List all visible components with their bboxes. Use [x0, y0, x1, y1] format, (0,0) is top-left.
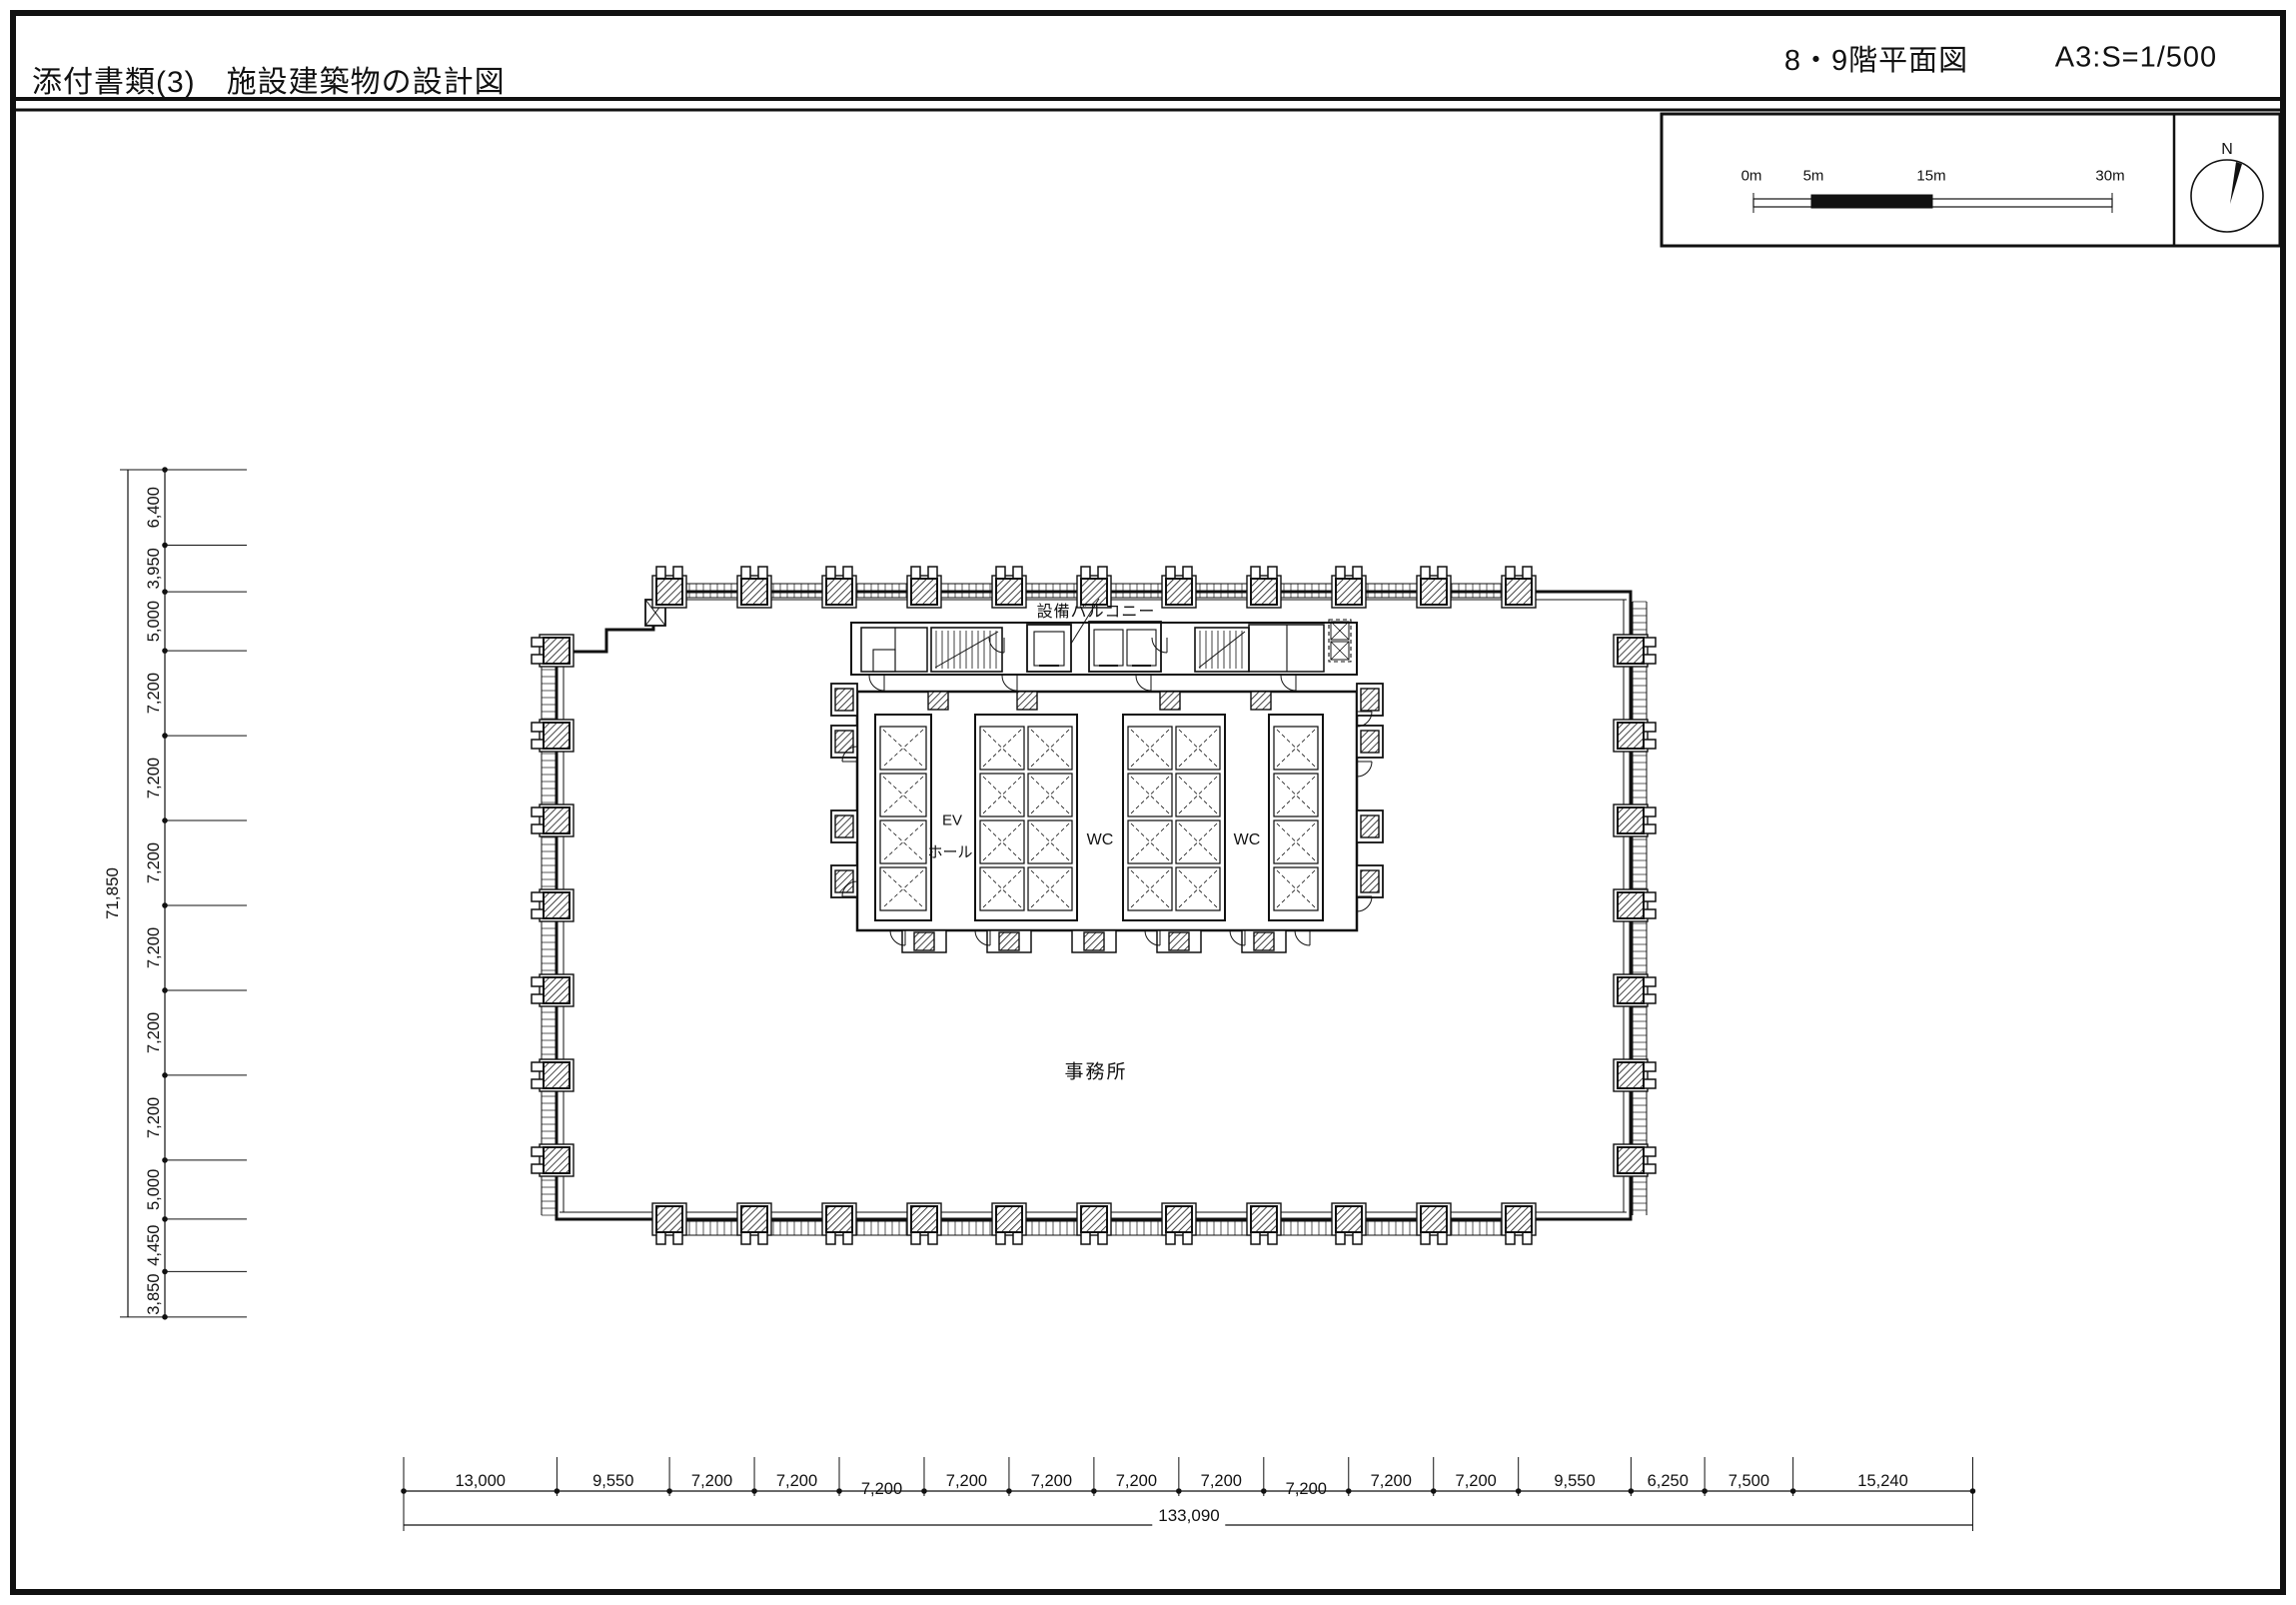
- sheet-scale-note: A3:S=1/500: [2055, 42, 2217, 75]
- scale-label-0m: 0m: [1741, 168, 1762, 185]
- svg-text:7,200: 7,200: [1286, 1480, 1327, 1498]
- svg-text:7,200: 7,200: [145, 758, 163, 799]
- document-title: 添付書類(3) 施設建築物の設計図: [32, 57, 506, 101]
- svg-text:6,400: 6,400: [145, 487, 163, 528]
- equipment-balcony-label: 設備バルコニー: [1037, 598, 1156, 622]
- overall-width-dimension: 133,090: [1152, 1506, 1225, 1526]
- svg-text:7,200: 7,200: [1371, 1472, 1412, 1490]
- overall-height-dimension: 71,850: [103, 863, 123, 923]
- svg-text:7,500: 7,500: [1728, 1472, 1769, 1490]
- svg-text:3,850: 3,850: [145, 1273, 163, 1314]
- sheet-frame: [13, 13, 2283, 1592]
- svg-text:7,200: 7,200: [145, 927, 163, 968]
- building-core: [831, 599, 1383, 952]
- svg-text:9,550: 9,550: [592, 1472, 633, 1490]
- svg-text:7,200: 7,200: [145, 673, 163, 714]
- svg-text:7,200: 7,200: [145, 842, 163, 883]
- svg-text:4,450: 4,450: [145, 1224, 163, 1265]
- svg-text:7,200: 7,200: [1116, 1472, 1157, 1490]
- building-outline: [532, 567, 1656, 1244]
- north-arrow-label: N: [2221, 141, 2233, 159]
- svg-text:7,200: 7,200: [946, 1472, 987, 1490]
- svg-text:9,550: 9,550: [1554, 1472, 1595, 1490]
- dimension-chains: 13,0009,5507,2007,2007,2007,2007,2007,20…: [120, 468, 1975, 1531]
- svg-text:6,250: 6,250: [1648, 1472, 1689, 1490]
- drawing-sheet: 13,0009,5507,2007,2007,2007,2007,2007,20…: [0, 0, 2296, 1605]
- scale-label-30m: 30m: [2095, 168, 2124, 185]
- office-label: 事務所: [1064, 1057, 1127, 1084]
- svg-text:7,200: 7,200: [145, 1097, 163, 1138]
- svg-text:7,200: 7,200: [1456, 1472, 1497, 1490]
- svg-text:5,000: 5,000: [145, 1169, 163, 1210]
- ev-hall-label-line2: ホール: [927, 841, 972, 862]
- ev-hall-label-line1: EV: [942, 812, 962, 829]
- scale-label-5m: 5m: [1803, 168, 1824, 185]
- svg-text:5,000: 5,000: [145, 601, 163, 642]
- svg-text:3,950: 3,950: [145, 548, 163, 589]
- svg-text:15,240: 15,240: [1857, 1472, 1907, 1490]
- wc-left-label: WC: [1087, 831, 1114, 849]
- svg-text:13,000: 13,000: [455, 1472, 505, 1490]
- svg-text:7,200: 7,200: [1201, 1472, 1242, 1490]
- svg-text:7,200: 7,200: [776, 1472, 817, 1490]
- wc-right-label: WC: [1234, 831, 1261, 849]
- scale-label-15m: 15m: [1916, 168, 1945, 185]
- svg-text:7,200: 7,200: [1031, 1472, 1072, 1490]
- sheet-title: 8・9階平面図: [1784, 37, 1968, 79]
- svg-text:7,200: 7,200: [861, 1480, 902, 1498]
- svg-text:7,200: 7,200: [145, 1012, 163, 1053]
- floor-plan-drawing: 13,0009,5507,2007,2007,2007,2007,2007,20…: [0, 0, 2296, 1605]
- svg-text:7,200: 7,200: [691, 1472, 732, 1490]
